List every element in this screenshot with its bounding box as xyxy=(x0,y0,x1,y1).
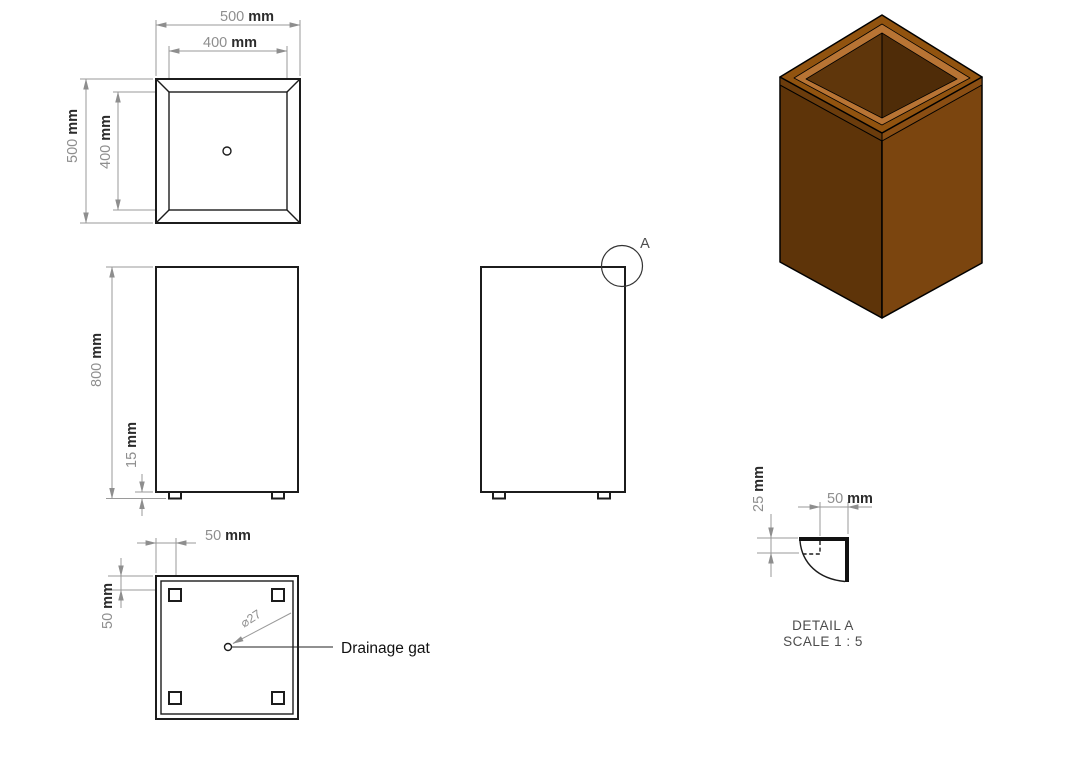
planter-body xyxy=(481,267,625,492)
dim-label-outer-width: 500mm xyxy=(220,9,274,25)
foot xyxy=(169,492,181,499)
drainage-label: Drainage gat xyxy=(341,640,430,657)
iso-view xyxy=(780,15,982,318)
drawing-canvas: 500mm 400mm 500mm 400mm 800mm 15mm A xyxy=(0,0,1066,765)
dim-label-foot-height: 15mm xyxy=(124,422,140,468)
dim-label-inner-height: 400mm xyxy=(98,115,114,169)
bottom-view: ⌀27 Drainage gat 50mm 50mm xyxy=(100,528,430,719)
foot xyxy=(598,492,610,499)
foot xyxy=(272,692,284,704)
planter-body xyxy=(156,267,298,492)
hidden-flange-line xyxy=(802,541,820,554)
detail-marker-label: A xyxy=(640,236,650,252)
top-view: 500mm 400mm 500mm 400mm xyxy=(65,9,300,223)
foot xyxy=(493,492,505,499)
dim-label-depth: 25mm xyxy=(751,466,767,512)
foot xyxy=(169,692,181,704)
dim-label-offset-v: 50mm xyxy=(100,583,116,629)
detail-scale-note: SCALE 1 : 5 xyxy=(783,634,863,649)
detail-title: DETAIL A xyxy=(792,618,854,633)
drawing-page: 500mm 400mm 500mm 400mm 800mm 15mm A xyxy=(0,0,1066,765)
foot xyxy=(169,589,181,601)
corner-arc xyxy=(800,541,845,582)
dim-label-inner-width: 400mm xyxy=(203,35,257,51)
dim-label-width: 50mm xyxy=(827,491,873,507)
detail-a-view: 25mm 50mm DETAIL A SCALE 1 : 5 xyxy=(751,466,873,649)
foot xyxy=(272,492,284,499)
foot xyxy=(272,589,284,601)
dim-label-offset-h: 50mm xyxy=(205,528,251,544)
front-view: 800mm 15mm xyxy=(89,267,298,516)
dim-label-outer-height: 500mm xyxy=(65,109,81,163)
planter-inner-edge xyxy=(169,92,287,210)
side-view: A xyxy=(481,236,650,499)
dim-label-height: 800mm xyxy=(89,333,105,387)
